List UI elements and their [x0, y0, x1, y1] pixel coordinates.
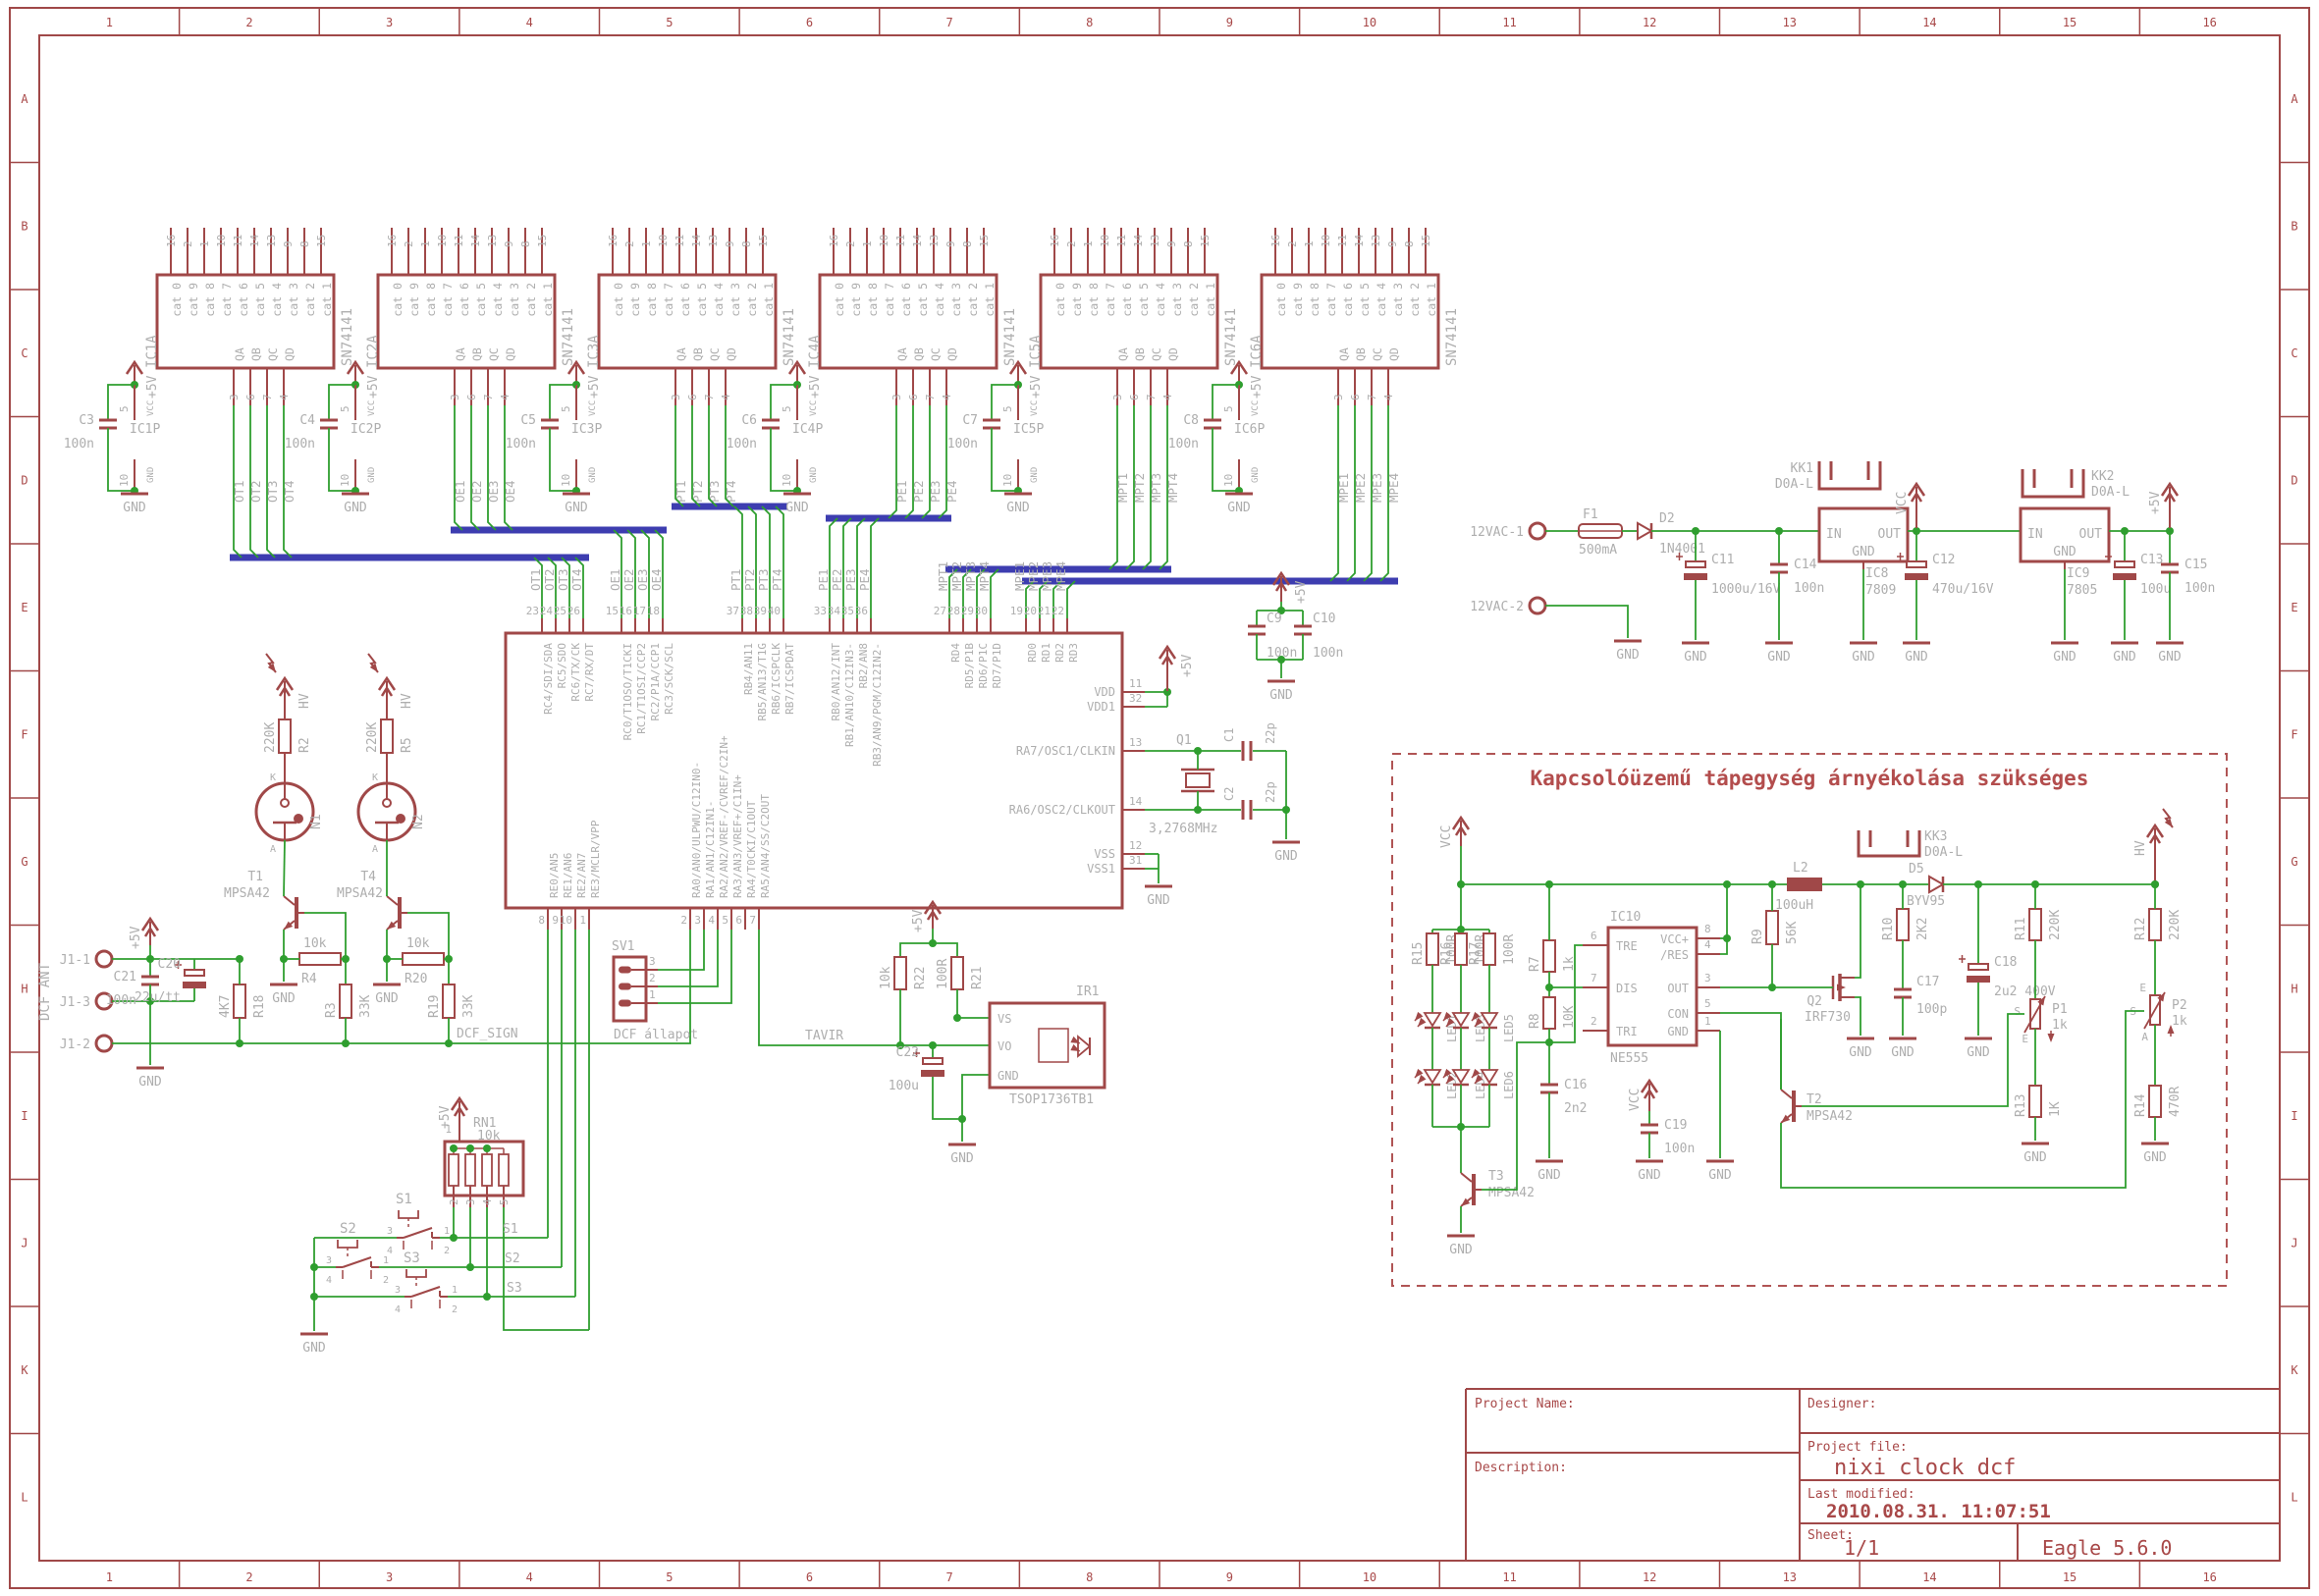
label: RB0/AN12/INT	[830, 643, 842, 721]
label: RB3/AN9/PGM/C12IN2-	[871, 643, 884, 767]
label: 19	[1010, 605, 1023, 617]
label: GND	[1891, 1045, 1915, 1060]
label: cat 1	[762, 283, 776, 317]
junction-dot	[483, 1144, 491, 1152]
label: 6	[686, 394, 699, 400]
label: GND	[1537, 1168, 1561, 1183]
label: 5	[1001, 405, 1014, 412]
label: SV1	[612, 939, 634, 954]
label: cat 2	[303, 283, 317, 317]
label: GND	[1274, 849, 1298, 864]
label: 13	[1370, 235, 1382, 247]
label: VCC	[809, 400, 819, 416]
net-label: OT3	[556, 568, 570, 591]
label: C3	[79, 413, 94, 428]
label: 13	[1149, 235, 1161, 247]
resistor-body	[234, 984, 245, 1018]
label: GND	[588, 467, 598, 483]
label: RE1/AN6	[562, 853, 574, 898]
label: QA	[233, 347, 246, 361]
label: 7	[482, 394, 495, 400]
label: 7	[261, 394, 274, 400]
description-label: Description:	[1475, 1461, 1567, 1475]
label: KK2	[2091, 469, 2114, 484]
net-label: OE2	[621, 568, 636, 591]
frame-column-label: 2	[245, 1570, 252, 1584]
label: 2	[680, 914, 687, 927]
label: QC	[266, 347, 280, 361]
label: VCC	[588, 400, 598, 416]
label: 2	[649, 972, 656, 984]
label: R4	[301, 972, 317, 986]
junction-dot	[466, 1144, 474, 1152]
label: 2	[844, 240, 857, 247]
label: GND	[1667, 1025, 1689, 1038]
label: 25	[554, 605, 566, 617]
label: IC2A	[365, 335, 381, 368]
label: P2	[2172, 998, 2187, 1013]
label: 7	[924, 394, 937, 400]
label: C9	[1267, 612, 1282, 626]
label: cat 9	[187, 283, 200, 317]
frame-row-label: A	[21, 92, 28, 106]
label: 10k	[406, 936, 430, 951]
label: SN74141	[340, 308, 355, 366]
resistor-body	[1543, 940, 1555, 972]
frame-row-label: J	[2291, 1236, 2297, 1250]
label: RC1/T1OSI/CCP2	[635, 643, 648, 734]
label: 1	[419, 240, 432, 247]
label: VCC	[1439, 825, 1454, 848]
label: 100R	[936, 959, 950, 989]
label: 4	[481, 1198, 494, 1205]
frame-row-label: L	[21, 1490, 27, 1504]
label: 9	[1165, 240, 1178, 247]
label: cat 9	[1291, 283, 1305, 317]
label: +5V	[1294, 580, 1309, 604]
label: 33	[814, 605, 827, 617]
frame-row-label: G	[2291, 855, 2297, 869]
label: cat 0	[833, 283, 846, 317]
label: 3	[890, 394, 903, 400]
label: cat 6	[237, 283, 250, 317]
label: 8	[1704, 923, 1711, 935]
label: C2	[1222, 787, 1236, 801]
label: 16	[828, 235, 840, 247]
label: cat 4	[712, 283, 726, 317]
label: GND	[2158, 650, 2182, 665]
label: 2n2	[1564, 1101, 1587, 1116]
label: 5	[339, 405, 351, 412]
label: MPSA42	[224, 886, 270, 901]
label: D0A-L	[1775, 477, 1813, 492]
label: 10	[1222, 474, 1235, 487]
frame-row-label: L	[2291, 1490, 2297, 1504]
label: cat 2	[1187, 283, 1201, 317]
label: 2	[444, 1246, 450, 1256]
label: 30	[975, 605, 988, 617]
label: +5V	[129, 926, 143, 949]
label: N2	[411, 814, 426, 829]
label: GND	[565, 501, 588, 515]
label: QC	[929, 347, 943, 361]
frame-column-label: 11	[1502, 1570, 1516, 1584]
label: 15	[978, 235, 991, 247]
label: GND	[998, 1069, 1019, 1083]
label: 1	[640, 240, 653, 247]
designer-label: Designer:	[1807, 1397, 1876, 1411]
label: 6	[735, 914, 742, 927]
label: 1K	[2048, 1101, 2063, 1117]
label: cat 2	[1408, 283, 1422, 317]
label: 18	[647, 605, 660, 617]
junction-dot	[1194, 806, 1202, 814]
label: cat 2	[966, 283, 980, 317]
label: cat 0	[1053, 283, 1067, 317]
label: C15	[2184, 558, 2207, 572]
label: 28	[947, 605, 960, 617]
npn-base-bar	[295, 897, 298, 929]
label: 3	[1704, 972, 1711, 984]
elco-plate	[921, 1070, 944, 1077]
label: 17	[633, 605, 646, 617]
label: 470u/16V	[1932, 582, 1994, 597]
label: 21	[1038, 605, 1051, 617]
label: QB	[1133, 347, 1147, 361]
label: IC6P	[1234, 422, 1265, 437]
label: 100n	[727, 437, 757, 452]
frame-column-label: 3	[386, 1570, 393, 1584]
label: 12	[1129, 839, 1142, 852]
elco-plate	[185, 970, 204, 976]
net-label: MPE4	[1053, 561, 1068, 591]
label: 7	[1366, 394, 1378, 400]
label: RD7/P1D	[991, 643, 1003, 688]
project-name-label: Project Name:	[1475, 1397, 1575, 1411]
label: 1	[445, 1123, 452, 1136]
label: 22p	[1264, 781, 1277, 803]
label: cat 5	[474, 283, 488, 317]
label: IRF730	[1805, 1010, 1851, 1025]
label: T2	[1807, 1092, 1822, 1107]
label: cat 5	[916, 283, 930, 317]
switch-name: S3	[404, 1250, 420, 1266]
label: QD	[1166, 347, 1180, 361]
label: cat 3	[287, 283, 300, 317]
label: 2u2 400V	[1994, 984, 2056, 999]
label: 16	[1049, 235, 1061, 247]
label: 11	[1115, 235, 1128, 247]
frame-column-label: 10	[1363, 16, 1376, 29]
label: T1	[247, 870, 263, 884]
label: IC4P	[792, 422, 823, 437]
label: cat 7	[883, 283, 896, 317]
label: cat 7	[441, 283, 455, 317]
label: VCC	[1895, 492, 1910, 514]
label: 4	[1704, 938, 1711, 951]
label: R12	[2133, 918, 2148, 940]
label: QA	[454, 347, 467, 361]
label: cat 4	[933, 283, 946, 317]
frame-row-label: C	[2291, 346, 2297, 360]
label: 10k	[879, 966, 893, 989]
label: RB6/ICSPCLK	[770, 643, 782, 715]
label: VCC	[1030, 400, 1040, 416]
elco-plate	[1968, 964, 1988, 970]
label: SN74141	[1444, 308, 1460, 366]
label: 14	[690, 234, 703, 247]
last-modified-value: 2010.08.31. 11:07:51	[1826, 1501, 2051, 1522]
label: VCC	[146, 400, 156, 416]
label: GND	[2053, 650, 2076, 665]
label: 12VAC-1	[1470, 525, 1524, 540]
label: 1	[579, 914, 586, 927]
label: QA	[895, 347, 909, 361]
label: 3	[449, 394, 461, 400]
frame-row-label: E	[2291, 601, 2297, 614]
label: cat 6	[1341, 283, 1355, 317]
label: 100n	[1794, 581, 1824, 596]
label: C1	[1222, 728, 1236, 742]
label: C16	[1564, 1078, 1587, 1092]
label: 31	[1129, 854, 1142, 867]
label: 8	[1182, 240, 1195, 247]
frame-row-label: C	[21, 346, 27, 360]
label: cat 7	[662, 283, 675, 317]
label: TRI	[1616, 1025, 1638, 1038]
label: 5	[118, 405, 131, 412]
frame-row-label: I	[2291, 1109, 2297, 1123]
label: VCC	[1628, 1089, 1643, 1111]
label: Q2	[1807, 994, 1822, 1009]
sheet-value: 1/1	[1844, 1536, 1879, 1560]
net-label: OT4	[569, 568, 584, 591]
label: 100u	[2140, 582, 2171, 597]
label: C5	[520, 413, 536, 428]
eagle-schematic-sheet: 1122334455667788991010111112121313141415…	[0, 0, 2319, 1596]
label: SN74141	[561, 308, 576, 366]
elco-plate	[923, 1058, 943, 1064]
label: 3	[395, 1285, 401, 1296]
net-label: MPE2	[1026, 561, 1041, 591]
label: N1	[309, 814, 324, 829]
label: 10	[1001, 474, 1014, 487]
label: cat 4	[1154, 283, 1167, 317]
label: A	[372, 844, 378, 855]
label: VO	[998, 1039, 1011, 1053]
net-label: S1	[503, 1222, 518, 1237]
label: TSOP1736TB1	[1009, 1092, 1094, 1107]
label: R20	[404, 972, 427, 986]
label: 6	[465, 394, 478, 400]
label: F1	[1583, 507, 1598, 522]
label: cat 3	[949, 283, 963, 317]
frame-row-label: B	[21, 219, 27, 233]
label: DCF ANT	[37, 962, 53, 1021]
label: RA7/OSC1/CLKIN	[1016, 744, 1115, 758]
label: 9	[1386, 240, 1399, 247]
switch-name: S2	[340, 1221, 356, 1237]
label: GND	[2113, 650, 2136, 665]
net-label: PT1	[728, 568, 743, 591]
label: QB	[249, 347, 263, 361]
frame-column-label: 4	[526, 1570, 533, 1584]
label: R2	[297, 737, 312, 753]
label: RA1/AN1/C12IN1-	[704, 801, 717, 898]
label: IC1P	[130, 422, 160, 437]
label: MPSA42	[337, 886, 383, 901]
label: cat 8	[866, 283, 880, 317]
label: cat 2	[745, 283, 759, 317]
label: GND	[1227, 501, 1251, 515]
label: C14	[1794, 558, 1817, 572]
resistor-body	[443, 984, 455, 1018]
label: /RES	[1660, 948, 1689, 962]
label: GND	[1616, 648, 1640, 663]
label: R10	[1881, 918, 1896, 940]
npn-base-bar	[1792, 1091, 1796, 1122]
label: 10	[560, 474, 572, 487]
label: IC6A	[1249, 335, 1265, 368]
switch-name: S1	[396, 1192, 412, 1207]
net-label: MPT4	[977, 561, 992, 591]
label: cat 8	[424, 283, 438, 317]
label: 2	[1065, 240, 1078, 247]
sv1-pin	[619, 967, 631, 974]
frame-row-label: E	[21, 601, 27, 614]
label: cat 8	[645, 283, 659, 317]
label: 6	[1591, 930, 1597, 942]
resistor-body	[381, 719, 393, 753]
label: 8	[1403, 240, 1416, 247]
label: 7	[703, 394, 716, 400]
label: GND	[2053, 545, 2076, 559]
junction-dot	[1282, 806, 1290, 814]
label: GND	[367, 467, 377, 483]
label: 15	[1199, 235, 1212, 247]
label: IC9	[2067, 566, 2089, 581]
label: RD6/P1C	[977, 643, 990, 688]
label: cat 8	[203, 283, 217, 317]
junction-dot	[445, 955, 453, 963]
label: 3,2768MHz	[1149, 822, 1217, 836]
label: C17	[1916, 975, 1939, 989]
label: 14	[911, 234, 924, 247]
label: 4	[1161, 394, 1174, 400]
junction-dot	[483, 1293, 491, 1301]
label: 100n	[1267, 646, 1297, 661]
label: VSS	[1094, 847, 1115, 861]
label: 36	[855, 605, 868, 617]
label: QB	[691, 347, 705, 361]
label: cat 6	[1120, 283, 1134, 317]
label: 27	[934, 605, 946, 617]
label: VDD	[1094, 685, 1115, 699]
label: 3	[326, 1255, 332, 1266]
label: 10	[436, 235, 449, 247]
frame-column-label: 3	[386, 16, 393, 29]
label: 4	[499, 394, 512, 400]
label: 7805	[2067, 583, 2097, 598]
junction-dot	[1457, 1123, 1465, 1131]
label: +5V	[911, 909, 926, 932]
resistor-body	[1543, 997, 1555, 1029]
label: 1	[444, 1226, 450, 1237]
label: C13	[2140, 553, 2163, 567]
elco-plate	[2115, 561, 2134, 567]
frame-column-label: 9	[1226, 16, 1233, 29]
label: 15	[536, 235, 549, 247]
label: SN74141	[782, 308, 797, 366]
label: cat 3	[508, 283, 521, 317]
frame-column-label: 5	[666, 16, 673, 29]
label: GND	[302, 1341, 326, 1356]
label: 14	[469, 234, 482, 247]
label: 9	[503, 240, 515, 247]
label: MPSA42	[1807, 1109, 1853, 1124]
frame-column-label: 4	[526, 16, 533, 29]
label: 10k	[303, 936, 327, 951]
label: 4	[720, 394, 732, 400]
net-label: PE4	[857, 568, 872, 591]
label: RA3/AN3/VREF+/C1IN+	[731, 774, 744, 898]
label: IC10	[1610, 910, 1641, 925]
label: 1000u/16V	[1711, 582, 1781, 597]
label: GND	[375, 991, 399, 1006]
label: LED6	[1502, 1071, 1516, 1099]
label: R13	[2014, 1094, 2028, 1117]
junction-dot	[929, 1041, 937, 1049]
label: 100p	[1916, 1002, 1947, 1017]
label: GND	[1251, 467, 1261, 483]
label: 34	[828, 605, 841, 617]
label: GND	[1905, 650, 1928, 665]
label: 2	[1286, 240, 1299, 247]
label: cat 7	[1324, 283, 1338, 317]
project-file-label: Project file:	[1807, 1440, 1908, 1455]
label: cat 3	[1391, 283, 1405, 317]
label: J1-1	[60, 953, 90, 968]
label: cat 9	[1070, 283, 1084, 317]
resistor-body	[1427, 933, 1438, 965]
label: 100n	[2184, 581, 2215, 596]
label: 1	[649, 988, 656, 1001]
frame-column-label: 13	[1783, 16, 1797, 29]
label: cat 0	[612, 283, 625, 317]
label: RD3	[1067, 643, 1080, 663]
net-label: PE2	[830, 568, 844, 591]
label: 40	[768, 605, 781, 617]
label: VCC	[1251, 400, 1261, 416]
label: QD	[725, 347, 738, 361]
label: 10	[657, 235, 670, 247]
label: GND	[2143, 1150, 2167, 1165]
frame-row-label: D	[21, 473, 27, 487]
label: 38	[740, 605, 753, 617]
label: 10	[215, 235, 228, 247]
resistor-body	[2029, 1086, 2041, 1117]
label: QC	[708, 347, 722, 361]
frame-column-label: 8	[1086, 16, 1093, 29]
label: cat 8	[1308, 283, 1321, 317]
label: 10	[560, 914, 572, 927]
label: QD	[1387, 347, 1401, 361]
smps-title: Kapcsolóüzemű tápegység árnyékolása szük…	[1531, 767, 2089, 790]
label: RE3/MCLR/VPP	[589, 820, 602, 898]
net-label: MPT1	[936, 561, 950, 591]
label: cat 1	[983, 283, 997, 317]
label: R3	[324, 1002, 339, 1018]
